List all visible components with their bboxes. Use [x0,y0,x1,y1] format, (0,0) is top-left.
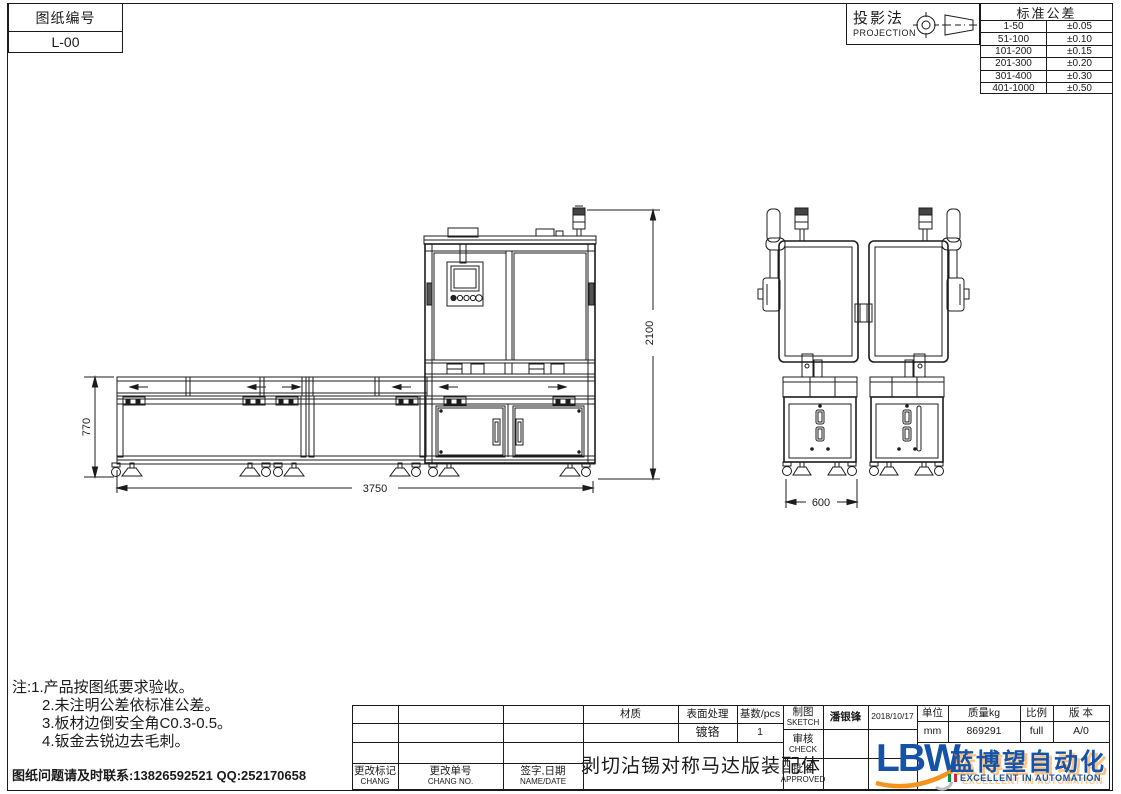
tol-range: 401-1000 [981,83,1047,94]
notes: 注:1.产品按图纸要求验收。 2.未注明公差依标准公差。 3.板材边倒安全角C0… [12,679,232,751]
note-line: 4.钣金去锐边去毛刺。 [12,733,232,751]
tol-value: ±0.30 [1047,71,1112,82]
tol-value: ±0.50 [1047,83,1112,94]
drawing-number-box: 图纸编号 L-00 [8,3,123,53]
dim-unit-width: 600 [812,497,830,509]
tol-value: ±0.20 [1047,58,1112,69]
tol-value: ±0.05 [1047,21,1112,32]
projection-label: 投影法 [853,7,904,28]
company-logo: LBW 蓝博望自动化 EXCELLENT IN AUTOMATION [862,739,1112,792]
unit-label: 单位 [917,705,948,721]
change-no-label: 更改单号 [430,765,472,777]
scale-label: 比例 [1020,705,1053,721]
projection-box: 投影法 PROJECTION [846,3,980,45]
drawing-number-label: 图纸编号 [9,4,122,31]
sketch-cell: 制图 SKETCH [783,705,823,729]
qty-value: 1 [737,723,783,742]
drawing-sheet: 770 2100 3750 600 图纸编号 L-00 投影法 PROJECTI… [0,0,1121,794]
sketch-sublabel: SKETCH [787,718,819,727]
dim-total-length: 3750 [363,483,387,495]
drawing-number-value: L-00 [9,31,122,52]
change-no-cell: 更改单号 CHANG NO. [398,763,503,789]
drawing-title: 剥切沾锡对称马达版装配体 [581,751,821,778]
note-line: 注:1.产品按图纸要求验收。 [12,679,232,697]
feet-front [112,463,591,477]
tolerance-row: 51-100±0.10 [981,32,1112,44]
surface-value: 镀铬 [678,723,737,742]
machine-drawing: 770 2100 3750 600 [0,0,1121,794]
side-view [758,208,969,476]
sign-date-cell: 签字,日期 NAME/DATE [503,763,583,789]
tol-range: 1-50 [981,21,1047,32]
tolerance-row: 401-1000±0.50 [981,82,1112,94]
tolerance-row: 1-50±0.05 [981,20,1112,32]
tol-range: 201-300 [981,58,1047,69]
sign-date-sublabel: NAME/DATE [520,777,566,786]
front-view-cabinet [424,206,596,463]
surface-label: 表面处理 [678,705,737,723]
tol-range: 301-400 [981,71,1047,82]
note-line: 3.板材边倒安全角C0.3-0.5。 [12,715,232,733]
control-panel [447,262,483,306]
material-label: 材质 [583,705,678,723]
sketch-label: 制图 [793,706,814,718]
weight-label: 质量kg [948,705,1020,721]
tol-value: ±0.15 [1047,46,1112,57]
dim-table-height: 770 [81,418,93,436]
projection-symbol-icon [913,7,979,43]
logo-tagline: EXCELLENT IN AUTOMATION [960,773,1101,783]
note-line: 2.未注明公差依标准公差。 [12,697,232,715]
change-mark-sublabel: CHANG [361,777,390,786]
door-handles-side [816,410,824,441]
contact-info: 图纸问题请及时联系:13826592521 QQ:252170658 [12,765,306,784]
tol-value: ±0.10 [1047,33,1112,44]
check-label: 审核 [793,733,814,745]
version-label: 版 本 [1053,705,1109,721]
sign-date-label: 签字,日期 [521,765,566,777]
sketch-date: 2018/10/17 [868,705,917,729]
dimension-3750 [117,470,593,494]
italy-flag-icon [948,774,957,782]
qty-label: 基数/pcs [737,705,783,723]
sketch-name: 潘银锋 [823,705,868,729]
tolerance-row: 101-200±0.15 [981,45,1112,57]
change-mark-cell: 更改标记 CHANG [352,763,398,789]
tolerance-row: 201-300±0.20 [981,57,1112,69]
tolerance-table: 标准公差 1-50±0.05 51-100±0.10 101-200±0.15 … [980,3,1113,94]
tolerance-title: 标准公差 [981,4,1112,20]
dim-machine-height: 2100 [644,321,656,345]
signal-tower-front [573,206,585,236]
change-no-sublabel: CHANG NO. [428,777,473,786]
projection-sublabel: PROJECTION [853,28,916,38]
change-mark-label: 更改标记 [354,765,396,777]
tol-range: 51-100 [981,33,1047,44]
tolerance-row: 301-400±0.30 [981,70,1112,82]
logo-name-cn: 蓝博望自动化 [950,742,1106,777]
tol-range: 101-200 [981,46,1047,57]
